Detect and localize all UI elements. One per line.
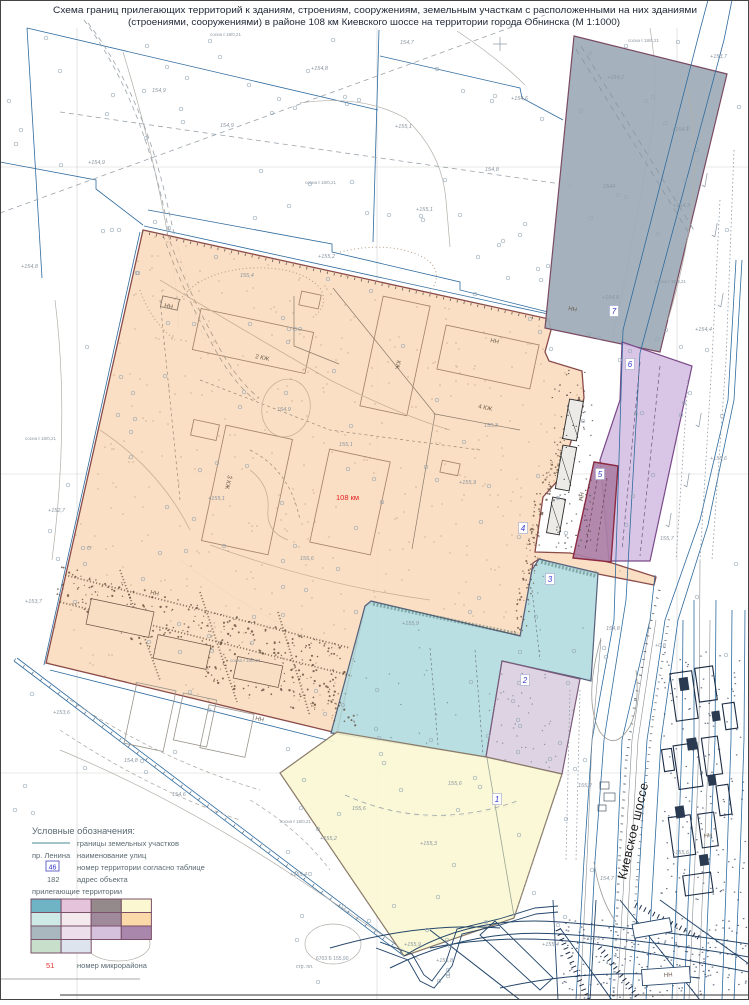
svg-text:наименование улиц: наименование улиц <box>77 851 147 860</box>
svg-text:154,9: 154,9 <box>220 123 234 129</box>
svg-text:7: 7 <box>612 307 617 316</box>
svg-text:+0,8: +0,8 <box>655 643 667 649</box>
svg-text:НН: НН <box>703 833 712 840</box>
svg-text:сосна ℓ 18/0,21: сосна ℓ 18/0,21 <box>210 32 242 37</box>
svg-text:+155,1: +155,1 <box>395 124 412 130</box>
svg-text:+153,6: +153,6 <box>53 710 71 716</box>
svg-text:сосна ℓ 18/0,21: сосна ℓ 18/0,21 <box>655 279 687 284</box>
svg-text:+155,2: +155,2 <box>318 254 335 260</box>
svg-text:+155,4: +155,4 <box>542 942 559 948</box>
svg-text:51: 51 <box>46 961 54 970</box>
svg-text:границы земельных участков: границы земельных участков <box>77 839 179 848</box>
svg-text:+155,4: +155,4 <box>290 872 307 878</box>
svg-text:+154,4: +154,4 <box>695 327 712 333</box>
svg-text:6: 6 <box>628 360 633 369</box>
svg-text:154,6: 154,6 <box>172 792 187 798</box>
svg-text:+155,9: +155,9 <box>402 621 419 627</box>
svg-text:+155,6: +155,6 <box>672 850 690 856</box>
svg-text:155,1: 155,1 <box>339 442 353 448</box>
svg-text:4: 4 <box>521 524 526 533</box>
svg-text:сосна ℓ 18/0,21: сосна ℓ 18/0,21 <box>628 38 660 43</box>
svg-text:+154,1: +154,1 <box>672 127 689 133</box>
svg-text:+154,9: +154,9 <box>583 936 600 942</box>
svg-text:154,8: 154,8 <box>485 167 500 173</box>
svg-text:+155,2: +155,2 <box>320 836 337 842</box>
svg-text:155,4: 155,4 <box>240 273 254 279</box>
svg-text:+155,3: +155,3 <box>420 841 438 847</box>
svg-text:+155,8: +155,8 <box>436 958 454 964</box>
svg-text:155,6: 155,6 <box>300 556 315 562</box>
svg-text:стр. пл.: стр. пл. <box>296 964 313 970</box>
svg-text:46: 46 <box>49 865 57 872</box>
svg-text:+155,1: +155,1 <box>208 496 225 502</box>
svg-text:108 км: 108 км <box>336 493 359 502</box>
svg-text:155,2: 155,2 <box>578 783 592 789</box>
svg-text:+152,7: +152,7 <box>48 508 66 514</box>
svg-text:+154,3: +154,3 <box>673 203 691 209</box>
svg-text:+155,3: +155,3 <box>459 480 477 486</box>
svg-text:НН: НН <box>664 972 673 979</box>
svg-text:2: 2 <box>522 676 528 685</box>
svg-text:154,8: 154,8 <box>606 626 621 632</box>
svg-text:+155,6: +155,6 <box>710 456 728 462</box>
svg-text:155,3: 155,3 <box>484 423 499 429</box>
svg-text:154,7: 154,7 <box>400 40 415 46</box>
svg-text:3: 3 <box>548 575 553 584</box>
svg-text:прилегающие территории: прилегающие территории <box>32 887 122 896</box>
svg-text:154,9: 154,9 <box>277 407 291 413</box>
svg-text:адрес объекта: адрес объекта <box>77 875 129 884</box>
svg-text:Условные обозначения:: Условные обозначения: <box>32 826 135 836</box>
svg-text:номер территории согласно табл: номер территории согласно таблице <box>77 863 205 872</box>
svg-text:+154,9: +154,9 <box>88 160 105 166</box>
svg-text:+154,8: +154,8 <box>311 66 329 72</box>
svg-text:+153,7: +153,7 <box>25 599 43 605</box>
svg-text:+154,8: +154,8 <box>21 264 39 270</box>
svg-text:+154,2: +154,2 <box>607 75 624 81</box>
svg-text:1544: 1544 <box>603 184 615 190</box>
svg-text:сосна ℓ 18/0,21: сосна ℓ 18/0,21 <box>305 180 337 185</box>
svg-text:сосна ℓ 18/0,21: сосна ℓ 18/0,21 <box>25 436 57 441</box>
svg-text:+154,6: +154,6 <box>511 96 529 102</box>
svg-text:+153,7: +153,7 <box>710 54 728 60</box>
svg-text:номер микрорайона: номер микрорайона <box>77 961 148 970</box>
svg-text:155,6: 155,6 <box>448 781 463 787</box>
svg-text:155,6: 155,6 <box>352 806 367 812</box>
svg-text:154,8: 154,8 <box>124 758 139 764</box>
svg-text:+155,1: +155,1 <box>416 207 433 213</box>
svg-text:сосна ℓ 18/0,21: сосна ℓ 18/0,21 <box>230 658 262 663</box>
svg-text:Схема границ прилегающих терри: Схема границ прилегающих территорий к зд… <box>53 5 697 15</box>
svg-text:182: 182 <box>47 875 60 884</box>
svg-text:154,9: 154,9 <box>152 88 166 94</box>
svg-text:(строениями, сооружениями) в р: (строениями, сооружениями) в районе 108 … <box>128 17 620 27</box>
svg-text:+155,9: +155,9 <box>404 942 421 948</box>
svg-text:пр. Ленина: пр. Ленина <box>32 851 71 860</box>
svg-text:5: 5 <box>598 470 603 479</box>
svg-text:155,7: 155,7 <box>660 536 675 542</box>
svg-text:1: 1 <box>495 795 499 804</box>
svg-text:сосна ℓ 18/0,21: сосна ℓ 18/0,21 <box>280 819 312 824</box>
svg-text:6703 Б 155,90: 6703 Б 155,90 <box>316 956 349 962</box>
svg-text:+154,8: +154,8 <box>602 295 620 301</box>
svg-text:154,7: 154,7 <box>600 876 615 882</box>
